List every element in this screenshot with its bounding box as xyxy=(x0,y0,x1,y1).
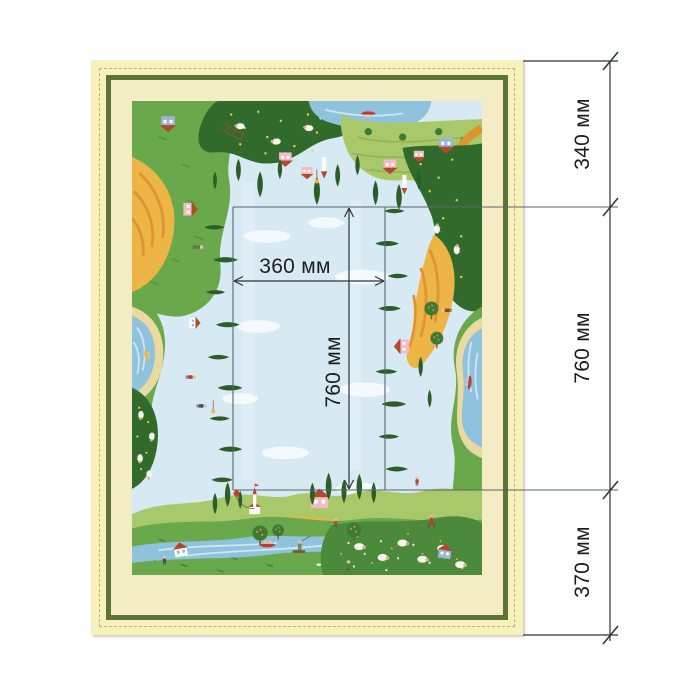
outer-middle-section-label: 760 мм xyxy=(570,303,596,393)
illustration-frame xyxy=(106,75,508,620)
outer-bottom-section-label: 370 мм xyxy=(570,517,596,607)
inner-width-label: 360 мм xyxy=(250,254,340,280)
inner-height-label: 760 мм xyxy=(321,327,347,417)
pastoral-illustration xyxy=(132,101,482,575)
outer-top-section-label: 340 мм xyxy=(570,89,596,179)
tablecloth-product-image xyxy=(91,60,523,635)
product-dimensions-diagram: 360 мм 760 мм 340 мм 760 мм 370 мм xyxy=(0,0,700,700)
